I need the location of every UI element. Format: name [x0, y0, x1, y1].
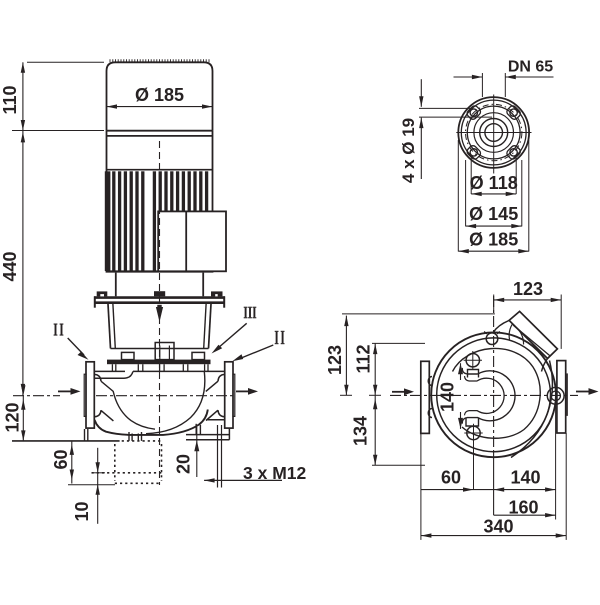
svg-text:110: 110: [0, 85, 20, 114]
svg-text:340: 340: [483, 517, 513, 537]
svg-text:DN 65: DN 65: [508, 59, 553, 76]
svg-text:3 x M12: 3 x M12: [243, 463, 306, 483]
svg-text:10: 10: [72, 501, 92, 521]
svg-text:Ø 185: Ø 185: [469, 230, 518, 250]
svg-text:60: 60: [51, 449, 71, 469]
svg-text:123: 123: [513, 279, 543, 299]
svg-text:Ø 145: Ø 145: [469, 204, 518, 224]
svg-text:60: 60: [441, 468, 461, 488]
svg-text:440: 440: [0, 251, 20, 281]
svg-text:140: 140: [510, 468, 540, 488]
svg-text:123: 123: [325, 345, 345, 375]
svg-text:160: 160: [508, 498, 538, 518]
svg-text:Ø 118: Ø 118: [470, 173, 518, 193]
svg-text:112: 112: [354, 344, 374, 373]
svg-text:4 x Ø 19: 4 x Ø 19: [399, 118, 418, 183]
svg-text:Ø 185: Ø 185: [135, 85, 184, 105]
svg-text:20: 20: [174, 454, 194, 474]
svg-text:120: 120: [3, 402, 23, 432]
svg-text:140: 140: [438, 382, 458, 412]
svg-text:134: 134: [351, 416, 371, 446]
